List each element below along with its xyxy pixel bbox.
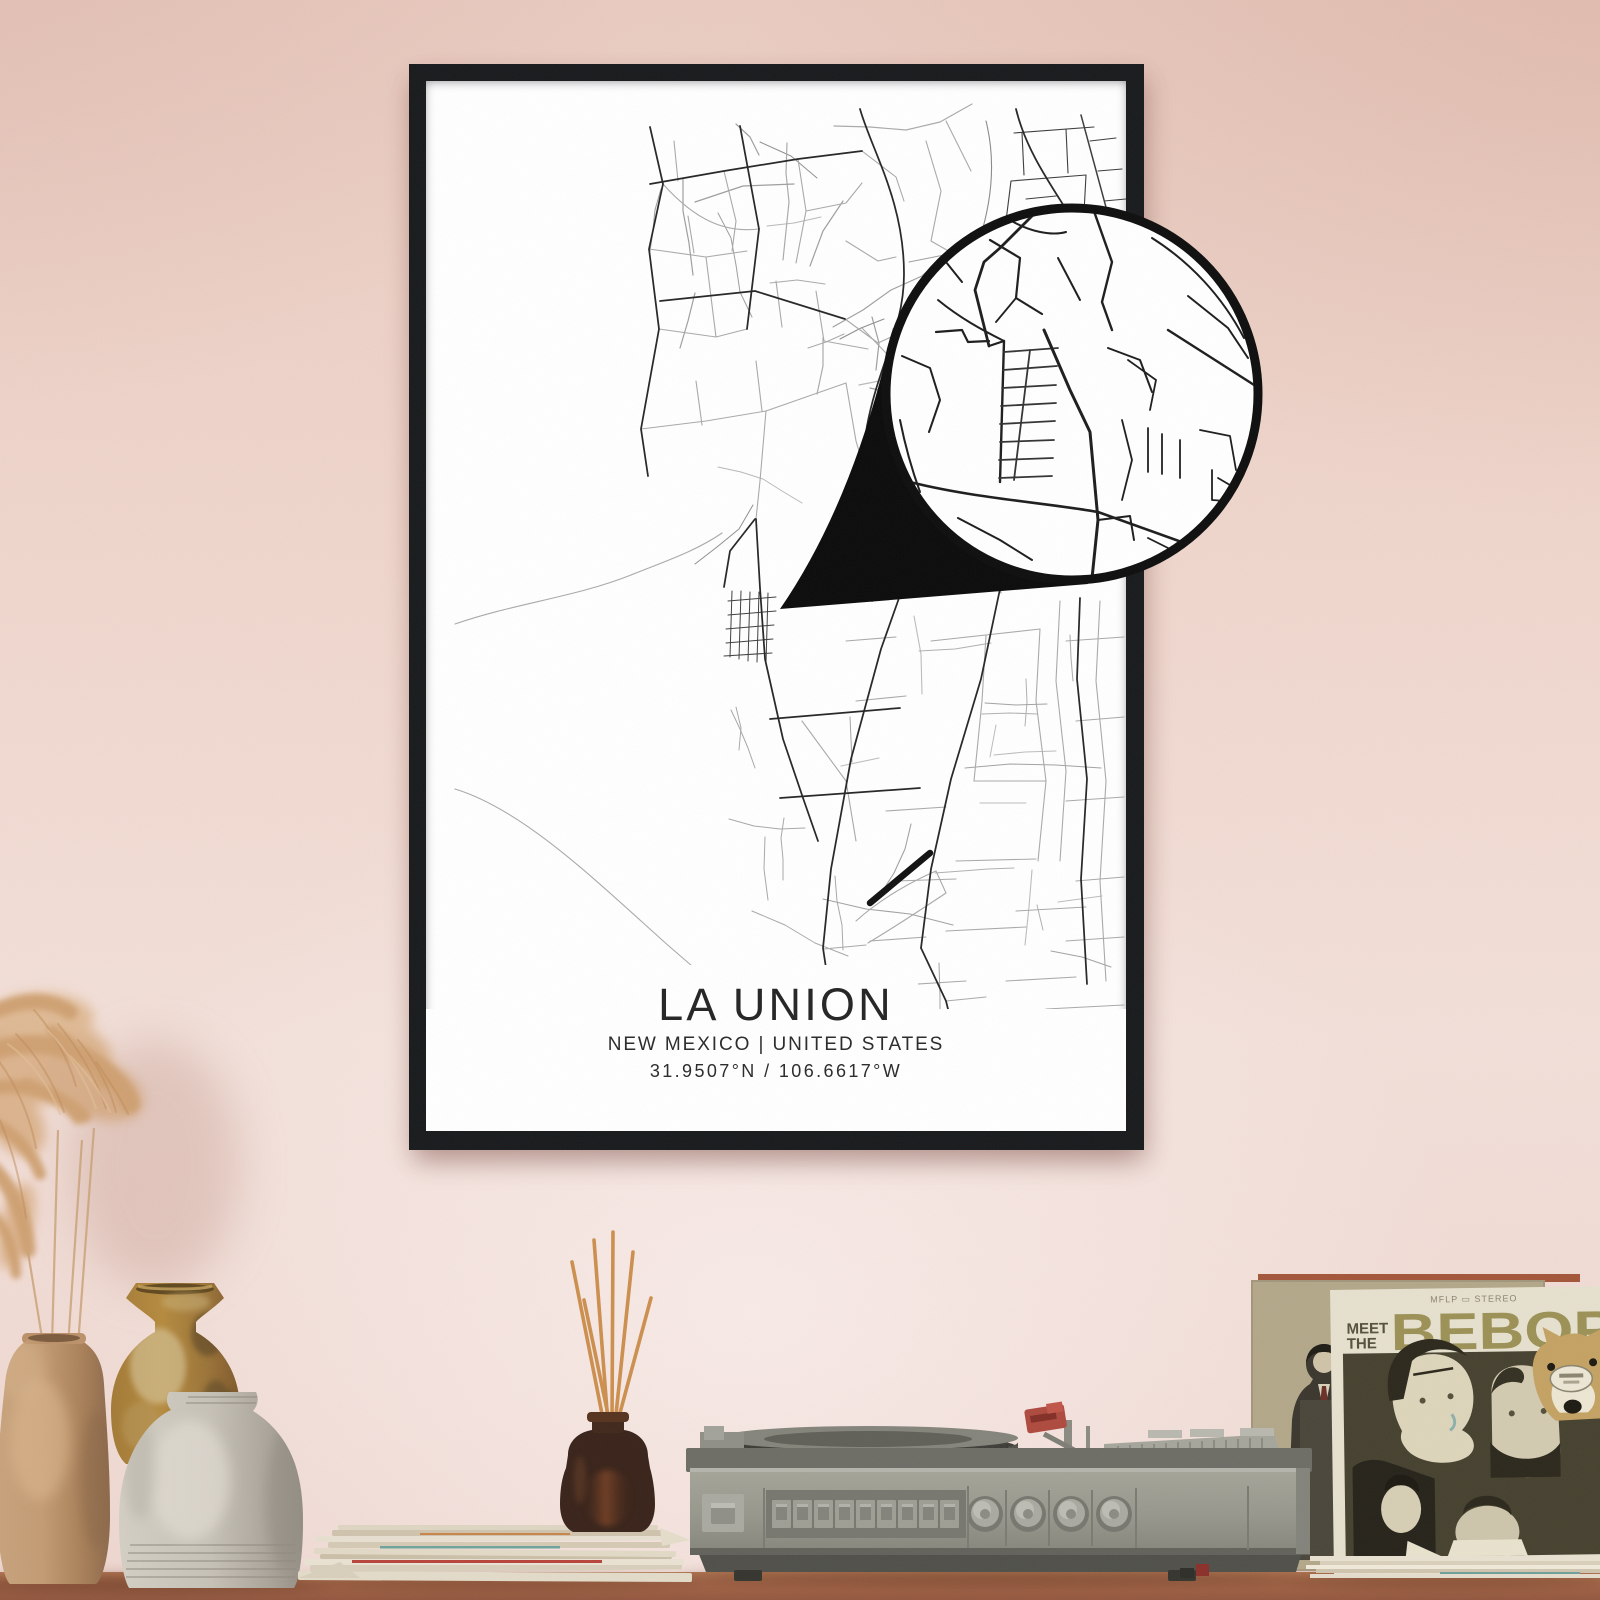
svg-text:THE: THE bbox=[1347, 1335, 1377, 1352]
